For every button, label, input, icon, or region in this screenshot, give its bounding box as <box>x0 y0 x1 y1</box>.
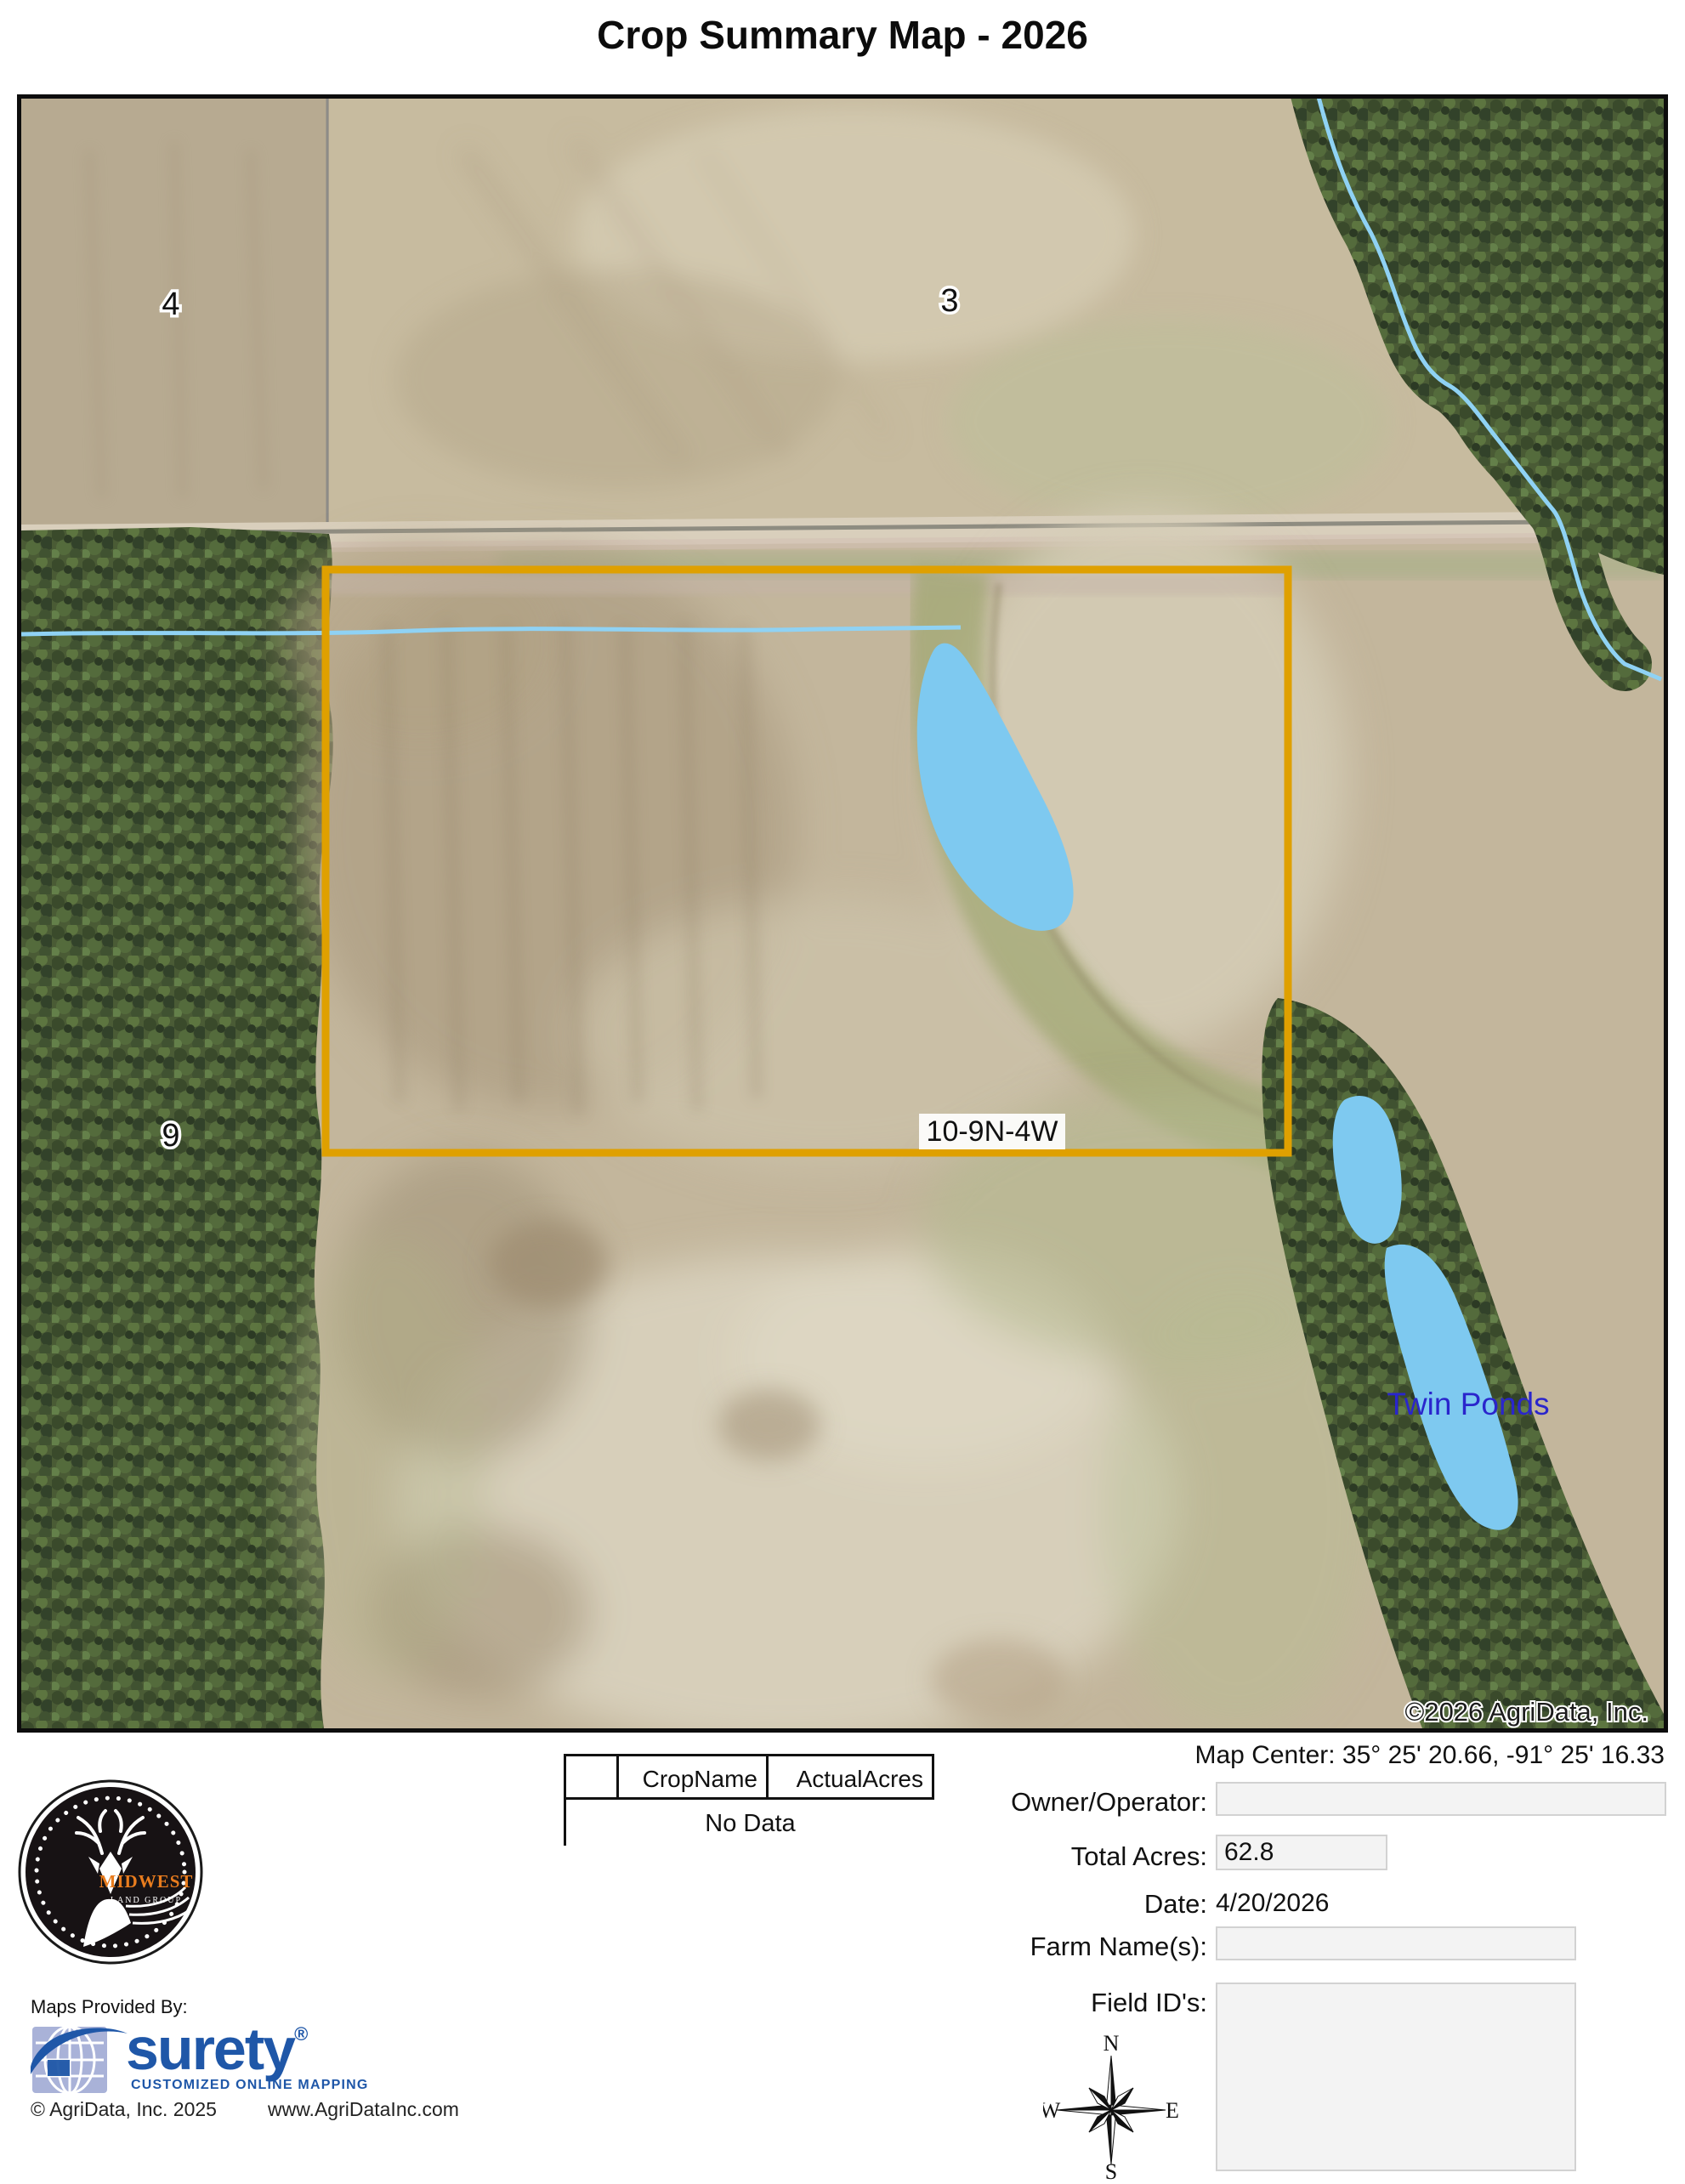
crop-table-header-actualacres: ActualAcres <box>769 1756 932 1797</box>
owner-operator-input[interactable] <box>1216 1782 1666 1816</box>
date-label: Date: <box>1144 1889 1207 1920</box>
plss-label-group: 10-9N-4W <box>919 1114 1065 1149</box>
field-ids-label: Field ID's: <box>1091 1988 1207 2018</box>
map-copyright: ©2026 AgriData, Inc. <box>1404 1697 1648 1727</box>
twin-ponds-label: Twin Ponds <box>1387 1387 1549 1421</box>
aerial-map-canvas: 4 3 9 10-9N-4W Twin Ponds ©2026 AgriData… <box>21 99 1664 1728</box>
owner-operator-label: Owner/Operator: <box>1011 1787 1207 1818</box>
compass-e-letter: E <box>1166 2098 1179 2123</box>
plss-label: 10-9N-4W <box>927 1115 1058 1148</box>
midwest-land-group-logo: MIDWEST LAND GROUP <box>17 1778 204 1970</box>
owner-operator-value <box>1217 1784 1665 1785</box>
midwest-wordmark: MIDWEST <box>99 1871 194 1892</box>
section-label-3: 3 <box>940 283 958 319</box>
surety-logo: surety® CUSTOMIZED ONLINE MAPPING <box>31 2020 473 2096</box>
surety-tagline: CUSTOMIZED ONLINE MAPPING <box>131 2078 369 2093</box>
crop-summary-table: CropName ActualAcres No Data <box>564 1754 934 1846</box>
total-acres-input[interactable]: 62.8 <box>1216 1835 1387 1870</box>
crop-table-header-cropname: CropName <box>619 1756 769 1797</box>
registered-mark: ® <box>294 2023 308 2045</box>
aerial-map: 4 3 9 10-9N-4W Twin Ponds ©2026 AgriData… <box>17 94 1668 1733</box>
compass-rose: N E S W <box>1043 2034 1179 2184</box>
crop-table-header-row: CropName ActualAcres <box>564 1754 934 1800</box>
farm-names-input[interactable] <box>1216 1926 1576 1960</box>
page-title: Crop Summary Map - 2026 <box>17 12 1668 58</box>
compass-w-letter: W <box>1043 2098 1061 2123</box>
surety-wordmark: surety® <box>126 2015 308 2083</box>
total-acres-value: 62.8 <box>1217 1836 1386 1867</box>
map-center: Map Center: 35° 25' 20.66, -91° 25' 16.3… <box>1195 1741 1665 1770</box>
section-label-9: 9 <box>162 1118 179 1154</box>
crop-table-empty-row: No Data <box>564 1800 934 1846</box>
map-center-value: 35° 25' 20.66, -91° 25' 16.33 <box>1342 1741 1665 1769</box>
boundary-top-band <box>327 573 1288 595</box>
compass-n-letter: N <box>1103 2034 1120 2056</box>
agridata-website: www.AgriDataInc.com <box>268 2098 459 2121</box>
surety-globe-icon <box>31 2020 131 2095</box>
agridata-copyright: © AgriData, Inc. 2025 <box>31 2098 217 2121</box>
field-ids-value <box>1217 1984 1574 1986</box>
farm-names-value <box>1217 1928 1574 1930</box>
farm-names-label: Farm Name(s): <box>1030 1932 1207 1962</box>
section-label-4: 4 <box>162 286 179 322</box>
crop-table-header-blank <box>566 1756 619 1797</box>
field-ids-input[interactable] <box>1216 1983 1576 2171</box>
midwest-subtitle: LAND GROUP <box>111 1896 182 1905</box>
compass-s-letter: S <box>1105 2159 1117 2180</box>
total-acres-label: Total Acres: <box>1071 1841 1207 1872</box>
map-center-label: Map Center: <box>1195 1741 1336 1769</box>
date-value: 4/20/2026 <box>1216 1889 1329 1918</box>
